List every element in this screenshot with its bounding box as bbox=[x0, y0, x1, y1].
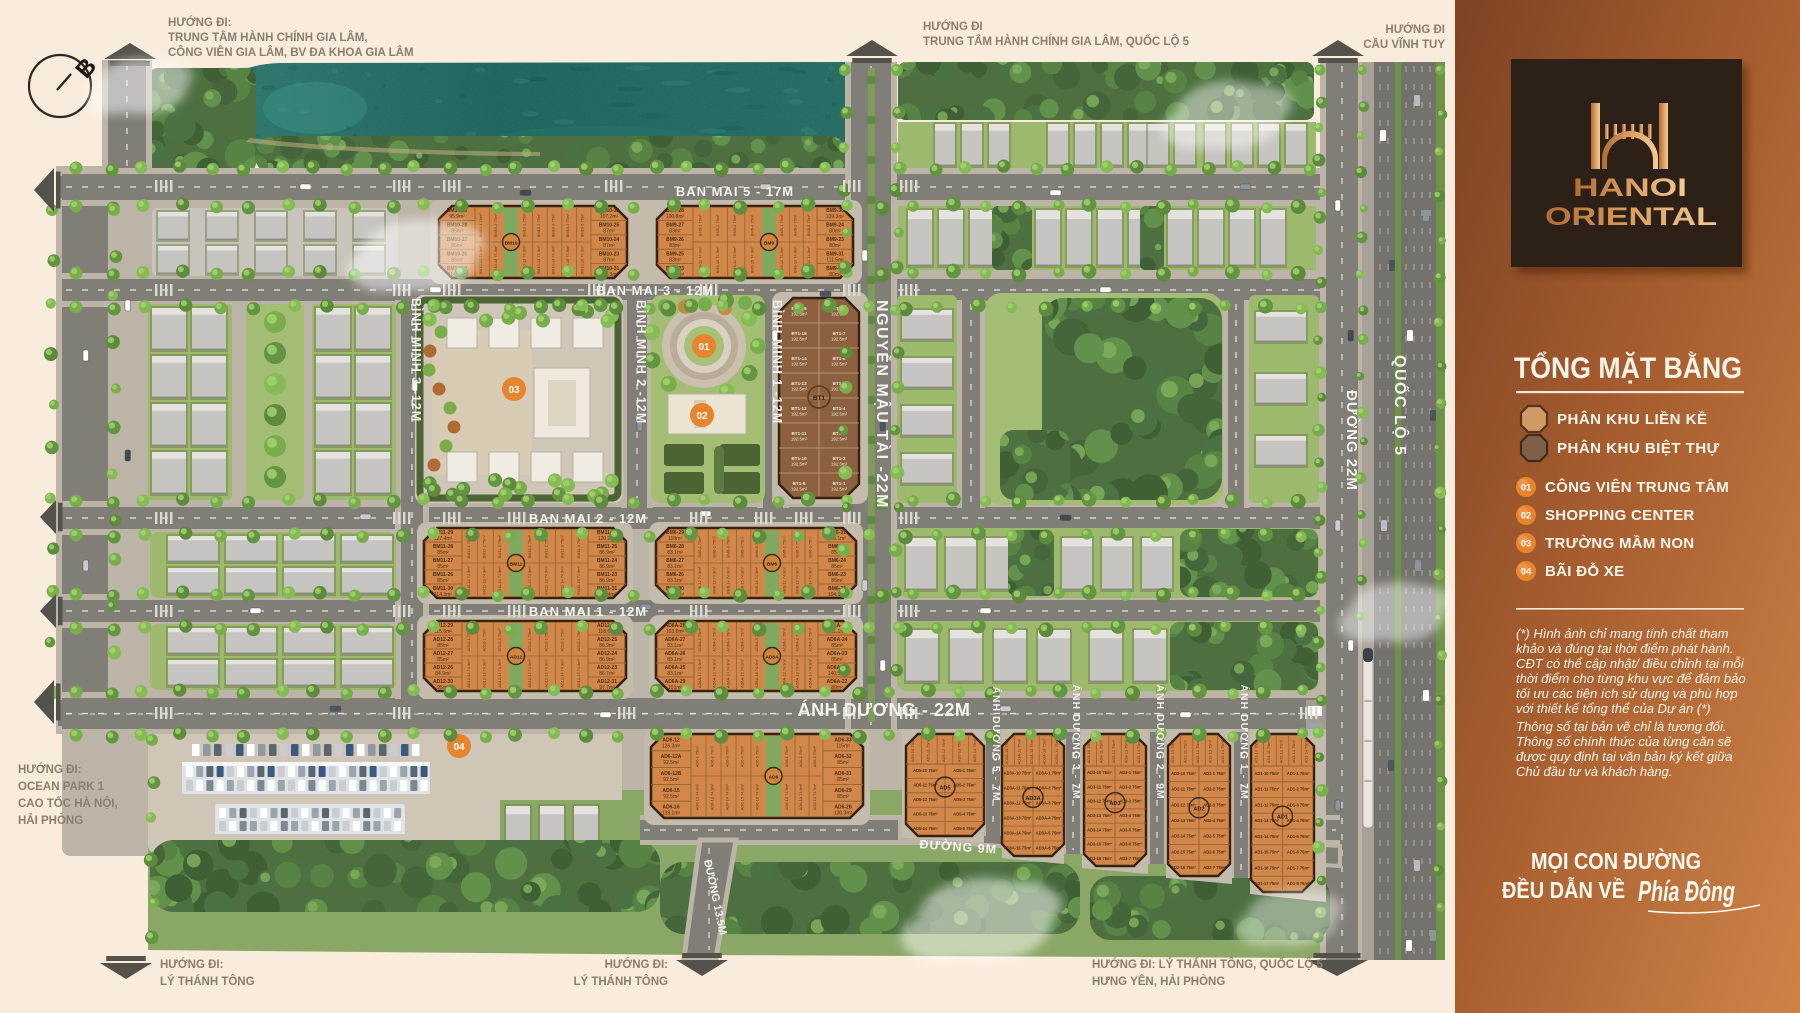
svg-text:AD12-15 74.9m²: AD12-15 74.9m² bbox=[576, 659, 581, 688]
svg-text:ĐƯỜNG 22M: ĐƯỜNG 22M bbox=[1343, 390, 1361, 491]
svg-text:87m²: 87m² bbox=[603, 257, 615, 263]
svg-text:BT1-9: BT1-9 bbox=[793, 481, 806, 486]
svg-text:BM9-13 74.9m²: BM9-13 74.9m² bbox=[715, 246, 720, 274]
svg-text:139.3m²: 139.3m² bbox=[826, 214, 845, 220]
svg-text:AD3-11 75m²: AD3-11 75m² bbox=[1087, 784, 1112, 789]
svg-text:AD5-2 75m²: AD5-2 75m² bbox=[953, 783, 976, 788]
svg-text:86.9m²: 86.9m² bbox=[599, 550, 615, 556]
svg-text:114.3m²: 114.3m² bbox=[434, 592, 452, 598]
svg-text:AD1-14 75m²: AD1-14 75m² bbox=[1304, 739, 1309, 763]
svg-text:AD2-1 75m²: AD2-1 75m² bbox=[1203, 771, 1226, 776]
svg-text:AD5-14 75m²: AD5-14 75m² bbox=[972, 738, 977, 762]
svg-text:AD6-3 75m²: AD6-3 75m² bbox=[725, 746, 730, 768]
svg-text:AD12-13 74.9m²: AD12-13 74.9m² bbox=[482, 659, 487, 688]
svg-text:AD5: AD5 bbox=[939, 786, 950, 792]
svg-text:LÝ THÁNH TÔNG: LÝ THÁNH TÔNG bbox=[160, 975, 255, 988]
svg-text:92.5m²: 92.5m² bbox=[663, 777, 679, 783]
svg-text:83.1m²: 83.1m² bbox=[667, 564, 683, 570]
svg-text:AD5-12 75m²: AD5-12 75m² bbox=[941, 738, 946, 762]
svg-text:AD2-5 75m²: AD2-5 75m² bbox=[1203, 834, 1226, 839]
svg-text:AD3A-10 75m²: AD3A-10 75m² bbox=[1004, 771, 1032, 776]
svg-text:04: 04 bbox=[1521, 567, 1532, 578]
svg-text:83.1m²: 83.1m² bbox=[667, 550, 683, 556]
svg-text:AD2-10 75m²: AD2-10 75m² bbox=[1171, 771, 1196, 776]
svg-text:BM6: BM6 bbox=[767, 562, 777, 568]
svg-text:khảo và đúng tại thời điểm phá: khảo và đúng tại thời điểm phát hành. bbox=[1516, 641, 1733, 656]
svg-text:83.1m²: 83.1m² bbox=[667, 643, 683, 649]
svg-text:AD3-6 75m²: AD3-6 75m² bbox=[1119, 842, 1142, 847]
svg-text:MỌI CON ĐƯỜNG: MỌI CON ĐƯỜNG bbox=[1531, 847, 1701, 874]
svg-text:AD1: AD1 bbox=[1277, 815, 1288, 821]
svg-text:192.5m²: 192.5m² bbox=[831, 412, 848, 417]
svg-text:AD6: AD6 bbox=[769, 775, 779, 781]
svg-text:AD6-1 75m²: AD6-1 75m² bbox=[784, 746, 789, 768]
svg-text:BM10-13 74.9m²: BM10-13 74.9m² bbox=[536, 245, 541, 275]
svg-text:AD3A-1 75m²: AD3A-1 75m² bbox=[1036, 771, 1062, 776]
svg-text:BM11-15 74.9m²: BM11-15 74.9m² bbox=[576, 565, 581, 594]
svg-text:HƯỚNG ĐI:: HƯỚNG ĐI: bbox=[168, 16, 231, 29]
svg-text:AD3A-13 75m²: AD3A-13 75m² bbox=[1041, 738, 1046, 764]
svg-text:AD6-13 74.9m²: AD6-13 74.9m² bbox=[710, 783, 715, 810]
svg-text:BM6-16 74.9m²: BM6-16 74.9m² bbox=[754, 566, 759, 594]
svg-text:AD2-6 75m²: AD2-6 75m² bbox=[1203, 849, 1226, 854]
svg-text:AD5-10 75m²: AD5-10 75m² bbox=[910, 738, 915, 762]
svg-text:AD1-7 75m²: AD1-7 75m² bbox=[1287, 865, 1310, 870]
svg-text:AD6-12 74.9m²: AD6-12 74.9m² bbox=[784, 783, 789, 810]
svg-text:86.9m²: 86.9m² bbox=[599, 564, 615, 570]
svg-text:BM10-4 75m²: BM10-4 75m² bbox=[565, 213, 570, 237]
svg-text:BM9-15 74.9m²: BM9-15 74.9m² bbox=[749, 246, 754, 274]
svg-text:01: 01 bbox=[1521, 483, 1532, 494]
svg-text:BM10-16 74.9m²: BM10-16 74.9m² bbox=[580, 245, 585, 275]
svg-text:AD3A-10 75m²: AD3A-10 75m² bbox=[1004, 738, 1009, 764]
svg-text:83.1m²: 83.1m² bbox=[667, 578, 683, 584]
svg-text:BT1-12: BT1-12 bbox=[791, 406, 807, 411]
svg-text:AD1-8 75m²: AD1-8 75m² bbox=[1287, 881, 1310, 886]
svg-text:HẢI PHÒNG: HẢI PHÒNG bbox=[18, 814, 83, 827]
svg-text:192.5m²: 192.5m² bbox=[791, 437, 808, 442]
svg-text:AD6A-16 74.9m²: AD6A-16 74.9m² bbox=[754, 658, 759, 688]
svg-text:HƯỚNG ĐI: HƯỚNG ĐI bbox=[923, 20, 983, 33]
svg-text:BM10: BM10 bbox=[505, 241, 518, 247]
svg-text:BT1-14: BT1-14 bbox=[791, 356, 807, 361]
svg-text:AD6A-4 75m²: AD6A-4 75m² bbox=[740, 627, 745, 651]
svg-text:04: 04 bbox=[453, 742, 465, 753]
svg-text:AD1-17 75m²: AD1-17 75m² bbox=[1254, 881, 1279, 886]
svg-text:AD2-2 75m²: AD2-2 75m² bbox=[1203, 787, 1226, 792]
svg-text:BM6-1 75m²: BM6-1 75m² bbox=[782, 535, 787, 557]
svg-text:ÁNH DƯƠNG - 22M: ÁNH DƯƠNG - 22M bbox=[798, 699, 971, 720]
svg-text:87m²: 87m² bbox=[603, 229, 615, 235]
svg-text:192.5m²: 192.5m² bbox=[791, 412, 808, 417]
svg-text:AD6A-3 75m²: AD6A-3 75m² bbox=[808, 627, 813, 651]
svg-text:192.5m²: 192.5m² bbox=[831, 337, 848, 342]
svg-text:AD1-11 75m²: AD1-11 75m² bbox=[1255, 787, 1280, 792]
svg-text:AD6-2 75m²: AD6-2 75m² bbox=[710, 746, 715, 768]
svg-text:AD5-13 75m²: AD5-13 75m² bbox=[913, 811, 938, 816]
svg-text:85m²: 85m² bbox=[437, 657, 449, 663]
svg-text:100.8m²: 100.8m² bbox=[666, 214, 685, 220]
svg-text:AD3-7 75m²: AD3-7 75m² bbox=[1119, 856, 1142, 861]
svg-text:BM9-13 74.9m²: BM9-13 74.9m² bbox=[793, 246, 798, 274]
svg-text:AD12-14 74.9m²: AD12-14 74.9m² bbox=[497, 659, 502, 688]
svg-text:AD2-4 75m²: AD2-4 75m² bbox=[1203, 818, 1226, 823]
svg-text:AD5-12 75m²: AD5-12 75m² bbox=[913, 797, 938, 802]
svg-text:OCEAN PARK 1: OCEAN PARK 1 bbox=[18, 781, 105, 793]
svg-text:AD5-10 75m²: AD5-10 75m² bbox=[913, 768, 938, 773]
svg-text:ÁNH DƯƠNG 5 - 7M: ÁNH DƯƠNG 5 - 7M bbox=[990, 686, 1003, 801]
svg-text:AD5-13 75m²: AD5-13 75m² bbox=[957, 738, 962, 762]
svg-text:AD2-7 75m²: AD2-7 75m² bbox=[1203, 865, 1226, 870]
svg-text:97.7m²: 97.7m² bbox=[599, 685, 615, 691]
svg-text:AD6A-1 75m²: AD6A-1 75m² bbox=[782, 627, 787, 651]
svg-text:BAN MAI 3 - 12M: BAN MAI 3 - 12M bbox=[596, 283, 714, 298]
svg-text:AD6-13 74.9m²: AD6-13 74.9m² bbox=[798, 783, 803, 810]
svg-text:192.5m²: 192.5m² bbox=[791, 362, 808, 367]
svg-text:AD3A-4 75m²: AD3A-4 75m² bbox=[1036, 816, 1062, 821]
svg-text:AD2-13 75m²: AD2-13 75m² bbox=[1171, 818, 1196, 823]
svg-text:HƯỚNG ĐI: LÝ THÁNH TÔNG, QUỐC: HƯỚNG ĐI: LÝ THÁNH TÔNG, QUỐC LỘ 5 bbox=[1092, 957, 1323, 971]
svg-text:CĐT có thể cập nhật/ điều chỉn: CĐT có thể cập nhật/ điều chỉnh tại mỗi bbox=[1516, 656, 1745, 671]
svg-text:BT1: BT1 bbox=[813, 395, 826, 402]
svg-text:BM6-13 74.9m²: BM6-13 74.9m² bbox=[711, 566, 716, 594]
svg-text:BT1-13: BT1-13 bbox=[791, 381, 807, 386]
svg-text:103.8m²: 103.8m² bbox=[666, 629, 685, 635]
svg-text:BT1-15: BT1-15 bbox=[791, 331, 807, 336]
svg-text:AD2-10 75m²: AD2-10 75m² bbox=[1170, 739, 1175, 763]
svg-text:BM6-13 74.9m²: BM6-13 74.9m² bbox=[795, 566, 800, 594]
svg-text:BÃI ĐỖ XE: BÃI ĐỖ XE bbox=[1545, 562, 1624, 580]
svg-text:192.5m²: 192.5m² bbox=[791, 462, 808, 467]
svg-text:Phía Đông: Phía Đông bbox=[1638, 876, 1735, 908]
svg-text:AD2-3 75m²: AD2-3 75m² bbox=[1203, 802, 1226, 807]
svg-text:TRUNG TÂM HÀNH CHÍNH GIA LÂM,: TRUNG TÂM HÀNH CHÍNH GIA LÂM, QUỐC LỘ 5 bbox=[923, 34, 1190, 48]
svg-text:thời điểm cho từng khu vực để: thời điểm cho từng khu vực để đảm bảo bbox=[1516, 671, 1746, 686]
svg-text:95.9m²: 95.9m² bbox=[449, 214, 465, 220]
svg-text:AD12-14 74.9m²: AD12-14 74.9m² bbox=[560, 659, 565, 688]
svg-text:85m²: 85m² bbox=[837, 777, 849, 783]
svg-text:BT1-10: BT1-10 bbox=[791, 456, 807, 461]
svg-text:86.9m²: 86.9m² bbox=[599, 657, 615, 663]
svg-text:192.5m²: 192.5m² bbox=[791, 387, 808, 392]
svg-text:AD6-16 74.9m²: AD6-16 74.9m² bbox=[755, 783, 760, 810]
svg-text:HƯỚNG ĐI:: HƯỚNG ĐI: bbox=[160, 958, 223, 971]
svg-text:85m²: 85m² bbox=[831, 643, 843, 649]
svg-text:BÌNH MINH 2 -12M: BÌNH MINH 2 -12M bbox=[634, 300, 649, 424]
svg-text:126.3m²: 126.3m² bbox=[662, 743, 681, 749]
svg-text:AD3A-13 75m²: AD3A-13 75m² bbox=[1004, 816, 1032, 821]
svg-text:BM9-1 75m²: BM9-1 75m² bbox=[698, 214, 703, 236]
svg-text:BM6-3 75m²: BM6-3 75m² bbox=[808, 535, 813, 557]
svg-text:BT1-1: BT1-1 bbox=[833, 481, 846, 486]
svg-text:80m²: 80m² bbox=[829, 243, 841, 249]
svg-text:BÌNH MINH 3 -12M: BÌNH MINH 3 -12M bbox=[409, 298, 424, 422]
svg-text:CẦU VĨNH TUY: CẦU VĨNH TUY bbox=[1363, 38, 1445, 51]
svg-text:AD12-1 75m²: AD12-1 75m² bbox=[527, 628, 532, 652]
svg-text:Thông số tại bản vẽ chỉ là tươ: Thông số tại bản vẽ chỉ là tương đối. bbox=[1516, 719, 1727, 734]
svg-text:AD3A-6 75m²: AD3A-6 75m² bbox=[1036, 846, 1062, 851]
svg-text:BM6-1 75m²: BM6-1 75m² bbox=[697, 535, 702, 557]
svg-text:80m²: 80m² bbox=[829, 272, 841, 278]
svg-text:AD6A-3 75m²: AD6A-3 75m² bbox=[726, 627, 731, 651]
svg-text:PHÂN KHU LIỀN KỀ: PHÂN KHU LIỀN KỀ bbox=[1557, 410, 1708, 428]
svg-text:BM9-3 75m²: BM9-3 75m² bbox=[806, 214, 811, 236]
svg-text:tối ưu các tiện ích sử dụng và: tối ưu các tiện ích sử dụng và phù hợp bbox=[1516, 686, 1738, 701]
svg-text:AD2-15 75m²: AD2-15 75m² bbox=[1171, 849, 1196, 854]
svg-text:01: 01 bbox=[698, 342, 710, 353]
svg-text:AD6A-13 74.9m²: AD6A-13 74.9m² bbox=[711, 658, 716, 688]
svg-text:130.3m²: 130.3m² bbox=[834, 811, 853, 817]
svg-text:AD1-5 75m²: AD1-5 75m² bbox=[1287, 834, 1310, 839]
svg-text:CÔNG VIÊN GIA LÂM, BV ĐA KHOA: CÔNG VIÊN GIA LÂM, BV ĐA KHOA GIA LÂM bbox=[168, 46, 414, 59]
svg-text:AD12-12 74.9m²: AD12-12 74.9m² bbox=[466, 659, 471, 688]
svg-text:AD12: AD12 bbox=[510, 655, 523, 661]
svg-text:101m²: 101m² bbox=[668, 685, 683, 691]
svg-text:BM11-3 75m²: BM11-3 75m² bbox=[560, 535, 565, 559]
svg-text:BM6-3 75m²: BM6-3 75m² bbox=[726, 535, 731, 557]
svg-text:AD1-12 75m²: AD1-12 75m² bbox=[1279, 739, 1284, 763]
svg-text:AD2: AD2 bbox=[1193, 806, 1204, 812]
svg-text:BAN MAI 2 - 12M: BAN MAI 2 - 12M bbox=[529, 511, 647, 526]
svg-text:AD3-1 75m²: AD3-1 75m² bbox=[1119, 770, 1142, 775]
svg-text:AD3-14 75m²: AD3-14 75m² bbox=[1087, 827, 1112, 832]
svg-text:192.5m²: 192.5m² bbox=[831, 362, 848, 367]
svg-text:BAN MAI 5 - 17M: BAN MAI 5 - 17M bbox=[676, 184, 794, 199]
svg-text:PHÂN KHU BIỆT THỰ: PHÂN KHU BIỆT THỰ bbox=[1557, 439, 1720, 457]
svg-text:AD6A-2 75m²: AD6A-2 75m² bbox=[711, 627, 716, 651]
svg-text:107.2m²: 107.2m² bbox=[600, 214, 619, 220]
svg-text:AD6-1 75m²: AD6-1 75m² bbox=[695, 746, 700, 768]
svg-text:BM10-14 74.9m²: BM10-14 74.9m² bbox=[551, 245, 556, 275]
svg-text:AD3-4 75m²: AD3-4 75m² bbox=[1119, 813, 1142, 818]
svg-text:192.5m²: 192.5m² bbox=[791, 487, 808, 492]
svg-text:AD6A-14 74.9m²: AD6A-14 74.9m² bbox=[808, 658, 813, 688]
svg-text:85m²: 85m² bbox=[437, 643, 449, 649]
svg-text:AD6-4 75m²: AD6-4 75m² bbox=[740, 746, 745, 768]
svg-text:AD5-5 75m²: AD5-5 75m² bbox=[953, 826, 976, 831]
svg-text:03: 03 bbox=[1521, 539, 1532, 550]
svg-text:BM10-2 75m²: BM10-2 75m² bbox=[493, 213, 498, 237]
svg-text:AD1-6 75m²: AD1-6 75m² bbox=[1287, 850, 1310, 855]
svg-text:AD3A-15 75m²: AD3A-15 75m² bbox=[1004, 846, 1032, 851]
svg-text:AD6-2 75m²: AD6-2 75m² bbox=[798, 746, 803, 768]
svg-text:AD1-11 75m²: AD1-11 75m² bbox=[1266, 739, 1271, 763]
svg-text:BM11-13 74.9m²: BM11-13 74.9m² bbox=[482, 565, 487, 594]
svg-text:AD3A-12 75m²: AD3A-12 75m² bbox=[1029, 738, 1034, 764]
svg-text:SHOPPING CENTER: SHOPPING CENTER bbox=[1545, 507, 1695, 524]
svg-text:AD6A-1 75m²: AD6A-1 75m² bbox=[697, 627, 702, 651]
svg-text:AD3-3 75m²: AD3-3 75m² bbox=[1119, 799, 1142, 804]
svg-text:BM10-2 75m²: BM10-2 75m² bbox=[536, 213, 541, 237]
svg-text:85m²: 85m² bbox=[437, 564, 449, 570]
svg-text:83.1m²: 83.1m² bbox=[667, 657, 683, 663]
svg-text:AD1-1 75m²: AD1-1 75m² bbox=[1287, 771, 1310, 776]
svg-text:ORIENTAL: ORIENTAL bbox=[1545, 203, 1717, 231]
svg-text:AD2-12 75m²: AD2-12 75m² bbox=[1195, 739, 1200, 763]
svg-text:85m²: 85m² bbox=[831, 564, 843, 570]
svg-text:CAO TỐC HÀ NỘI,: CAO TỐC HÀ NỘI, bbox=[18, 796, 118, 810]
svg-text:LÝ THÁNH TÔNG: LÝ THÁNH TÔNG bbox=[573, 975, 668, 988]
svg-text:192.5m²: 192.5m² bbox=[791, 337, 808, 342]
svg-text:83m²: 83m² bbox=[669, 243, 681, 249]
svg-text:AD1-13 75m²: AD1-13 75m² bbox=[1291, 739, 1296, 763]
svg-text:02: 02 bbox=[1521, 511, 1532, 522]
svg-text:AD5-11 75m²: AD5-11 75m² bbox=[925, 738, 930, 762]
svg-text:BM6-14 74.9m²: BM6-14 74.9m² bbox=[726, 566, 731, 594]
svg-text:ĐỀU DẪN VỀ: ĐỀU DẪN VỀ bbox=[1502, 875, 1625, 903]
svg-text:AD2-14 75m²: AD2-14 75m² bbox=[1171, 834, 1196, 839]
svg-text:AD2-16 75m²: AD2-16 75m² bbox=[1171, 865, 1196, 870]
svg-text:BM9: BM9 bbox=[764, 241, 774, 247]
svg-text:AD1-3 75m²: AD1-3 75m² bbox=[1287, 802, 1310, 807]
svg-text:HƯỚNG ĐI: HƯỚNG ĐI bbox=[1385, 23, 1445, 36]
svg-text:AD2-11 75m²: AD2-11 75m² bbox=[1171, 787, 1196, 792]
svg-text:(*) Hình ảnh chỉ mang tính chấ: (*) Hình ảnh chỉ mang tính chất tham bbox=[1516, 626, 1729, 641]
svg-text:115m²: 115m² bbox=[836, 743, 850, 749]
svg-text:AD1-14 75m²: AD1-14 75m² bbox=[1254, 834, 1279, 839]
svg-text:AD1-16 75m²: AD1-16 75m² bbox=[1254, 865, 1279, 870]
svg-text:AD2-13 75m²: AD2-13 75m² bbox=[1207, 739, 1212, 763]
svg-text:CÔNG VIÊN TRUNG TÂM: CÔNG VIÊN TRUNG TÂM bbox=[1545, 478, 1729, 496]
svg-text:BT1-11: BT1-11 bbox=[791, 431, 807, 436]
svg-text:TRUNG TÂM HÀNH CHÍNH GIA LÂM,: TRUNG TÂM HÀNH CHÍNH GIA LÂM, bbox=[168, 31, 368, 44]
svg-text:AD3-10 75m²: AD3-10 75m² bbox=[1086, 739, 1091, 763]
svg-text:AD6A-15 74.9m²: AD6A-15 74.9m² bbox=[740, 658, 745, 688]
svg-text:QUỐC LỘ 5: QUỐC LỘ 5 bbox=[1391, 355, 1411, 457]
svg-text:AD1-10 75m²: AD1-10 75m² bbox=[1253, 739, 1258, 763]
svg-text:Chủ đầu tư và khách hàng.: Chủ đầu tư và khách hàng. bbox=[1516, 764, 1672, 779]
svg-text:AD12-13 74.9m²: AD12-13 74.9m² bbox=[543, 659, 548, 688]
svg-text:được quy định tại văn bản ký k: được quy định tại văn bản ký kết giữa bbox=[1516, 749, 1733, 764]
svg-text:BM11: BM11 bbox=[510, 562, 523, 568]
svg-text:AD3-15 75m²: AD3-15 75m² bbox=[1087, 842, 1112, 847]
svg-text:BÌNH MINH 1 -12M: BÌNH MINH 1 -12M bbox=[770, 300, 785, 424]
svg-text:AD3-13 75m²: AD3-13 75m² bbox=[1123, 739, 1128, 763]
svg-text:BT1-2: BT1-2 bbox=[833, 456, 846, 461]
svg-text:BT1-4: BT1-4 bbox=[833, 406, 846, 411]
svg-text:AD3A-14 75m²: AD3A-14 75m² bbox=[1004, 831, 1032, 836]
svg-text:AD5-3 75m²: AD5-3 75m² bbox=[953, 797, 976, 802]
svg-text:AD6-14 74.9m²: AD6-14 74.9m² bbox=[812, 783, 817, 810]
svg-text:BM6-2 75m²: BM6-2 75m² bbox=[711, 535, 716, 557]
svg-text:AD3-11 75m²: AD3-11 75m² bbox=[1099, 739, 1104, 763]
svg-text:192.5m²: 192.5m² bbox=[831, 487, 848, 492]
svg-text:AD6A-14 74.9m²: AD6A-14 74.9m² bbox=[726, 658, 731, 688]
svg-text:AD1-10 75m²: AD1-10 75m² bbox=[1254, 771, 1279, 776]
svg-text:BM6-12 74.9m²: BM6-12 74.9m² bbox=[782, 566, 787, 594]
svg-text:BAN MAI 1 - 12M: BAN MAI 1 - 12M bbox=[529, 604, 647, 619]
svg-text:AD2-14 75m²: AD2-14 75m² bbox=[1220, 739, 1225, 763]
svg-text:TRƯỜNG MẦM NON: TRƯỜNG MẦM NON bbox=[1545, 534, 1694, 552]
svg-text:85m²: 85m² bbox=[437, 578, 449, 584]
svg-text:ÁNH DƯƠNG 1 - 7M: ÁNH DƯƠNG 1 - 7M bbox=[1238, 684, 1251, 799]
svg-text:BM9-2 75m²: BM9-2 75m² bbox=[715, 214, 720, 236]
svg-text:NGUYỄN MẬU TÀI -22M: NGUYỄN MẬU TÀI -22M bbox=[873, 300, 892, 509]
svg-text:BM11-1 75m²: BM11-1 75m² bbox=[527, 535, 532, 559]
svg-text:AD12-3 75m²: AD12-3 75m² bbox=[497, 628, 502, 652]
svg-text:BM9-4 75m²: BM9-4 75m² bbox=[749, 214, 754, 236]
svg-text:02: 02 bbox=[696, 411, 708, 422]
svg-text:AD3-16 75m²: AD3-16 75m² bbox=[1087, 856, 1112, 861]
svg-text:BM9-1 75m²: BM9-1 75m² bbox=[779, 214, 784, 236]
svg-text:83m²: 83m² bbox=[669, 229, 681, 235]
svg-text:AD3-5 75m²: AD3-5 75m² bbox=[1119, 827, 1142, 832]
svg-text:118m²: 118m² bbox=[668, 536, 682, 542]
svg-text:84.9m²: 84.9m² bbox=[435, 671, 451, 677]
svg-text:AD3A: AD3A bbox=[1025, 796, 1040, 802]
svg-text:AD5-4 75m²: AD5-4 75m² bbox=[953, 811, 976, 816]
svg-text:83m²: 83m² bbox=[669, 257, 681, 263]
svg-text:BM11-13 74.9m²: BM11-13 74.9m² bbox=[543, 565, 548, 594]
svg-text:85m²: 85m² bbox=[837, 794, 849, 800]
svg-text:83.1m²: 83.1m² bbox=[667, 671, 683, 677]
svg-text:BM10-1 75m²: BM10-1 75m² bbox=[521, 213, 526, 237]
svg-text:với thiết kế tổng thể của Dự á: với thiết kế tổng thể của Dự án (*) bbox=[1516, 701, 1711, 716]
svg-text:AD3-14 75m²: AD3-14 75m² bbox=[1136, 739, 1141, 763]
svg-text:AD3-13 75m²: AD3-13 75m² bbox=[1087, 813, 1112, 818]
svg-text:BM11-2 75m²: BM11-2 75m² bbox=[482, 535, 487, 559]
svg-text:192.5m²: 192.5m² bbox=[831, 437, 848, 442]
svg-text:80m²: 80m² bbox=[831, 685, 843, 691]
svg-text:Thông số chính thức của từng c: Thông số chính thức của từng căn sẽ bbox=[1516, 734, 1731, 749]
svg-text:AD6A-12 74.9m²: AD6A-12 74.9m² bbox=[697, 658, 702, 688]
svg-text:AD6-5 75m²: AD6-5 75m² bbox=[755, 746, 760, 768]
svg-text:ÁNH DƯƠNG 2 - 9M: ÁNH DƯƠNG 2 - 9M bbox=[1154, 684, 1167, 799]
svg-text:AD5-14 75m²: AD5-14 75m² bbox=[913, 826, 938, 831]
svg-text:BM11-3 75m²: BM11-3 75m² bbox=[497, 535, 502, 559]
svg-text:BM6-4 75m²: BM6-4 75m² bbox=[740, 535, 745, 557]
svg-text:AD1-2 75m²: AD1-2 75m² bbox=[1287, 787, 1310, 792]
svg-text:AD2-11 75m²: AD2-11 75m² bbox=[1183, 739, 1188, 763]
svg-text:92.5m²: 92.5m² bbox=[663, 794, 679, 800]
svg-text:BM10-3 75m²: BM10-3 75m² bbox=[551, 213, 556, 237]
svg-text:85m²: 85m² bbox=[831, 578, 843, 584]
svg-text:BM9-3 75m²: BM9-3 75m² bbox=[732, 214, 737, 236]
svg-text:HƯỚNG ĐI:: HƯỚNG ĐI: bbox=[18, 763, 81, 776]
svg-text:BM10-5 75m²: BM10-5 75m² bbox=[580, 213, 585, 237]
svg-text:139.1m²: 139.1m² bbox=[662, 811, 681, 817]
svg-text:AD12-2 75m²: AD12-2 75m² bbox=[482, 628, 487, 652]
svg-text:AD1-15 75m²: AD1-15 75m² bbox=[1254, 850, 1279, 855]
svg-text:AD1-12 75m²: AD1-12 75m² bbox=[1254, 802, 1279, 807]
svg-text:AD3-10 75m²: AD3-10 75m² bbox=[1087, 770, 1112, 775]
svg-text:BT1-7: BT1-7 bbox=[833, 331, 846, 336]
svg-text:TỔNG MẶT BẰNG: TỔNG MẶT BẰNG bbox=[1514, 351, 1742, 385]
svg-text:AD6-3 75m²: AD6-3 75m² bbox=[812, 746, 817, 768]
svg-text:AD3A-14 75m²: AD3A-14 75m² bbox=[1054, 738, 1059, 764]
svg-text:85m²: 85m² bbox=[837, 760, 849, 766]
svg-text:HƯNG YÊN, HẢI PHÒNG: HƯNG YÊN, HẢI PHÒNG bbox=[1092, 975, 1225, 988]
svg-text:86.7m²: 86.7m² bbox=[599, 671, 615, 677]
svg-text:HANOI: HANOI bbox=[1573, 174, 1687, 202]
svg-text:HƯỚNG ĐI:: HƯỚNG ĐI: bbox=[605, 958, 668, 971]
svg-text:AD12-12 74.9m²: AD12-12 74.9m² bbox=[527, 659, 532, 688]
svg-text:AD3-2 75m²: AD3-2 75m² bbox=[1119, 784, 1142, 789]
svg-text:AD12-3 75m²: AD12-3 75m² bbox=[560, 628, 565, 652]
svg-text:AD3-12 75m²: AD3-12 75m² bbox=[1111, 739, 1116, 763]
svg-text:87m²: 87m² bbox=[603, 243, 615, 249]
svg-text:85m²: 85m² bbox=[437, 550, 449, 556]
svg-text:86.9m²: 86.9m² bbox=[599, 578, 615, 584]
svg-text:AD3A-5 75m²: AD3A-5 75m² bbox=[1036, 831, 1062, 836]
svg-text:BM9-2 75m²: BM9-2 75m² bbox=[793, 214, 798, 236]
svg-text:86.9m²: 86.9m² bbox=[599, 643, 615, 649]
svg-text:80m²: 80m² bbox=[829, 229, 841, 235]
svg-text:AD6-12 74.9m²: AD6-12 74.9m² bbox=[695, 783, 700, 810]
svg-text:92.5m²: 92.5m² bbox=[663, 760, 679, 766]
svg-text:85m²: 85m² bbox=[831, 657, 843, 663]
svg-text:AD5-1 75m²: AD5-1 75m² bbox=[953, 768, 976, 773]
